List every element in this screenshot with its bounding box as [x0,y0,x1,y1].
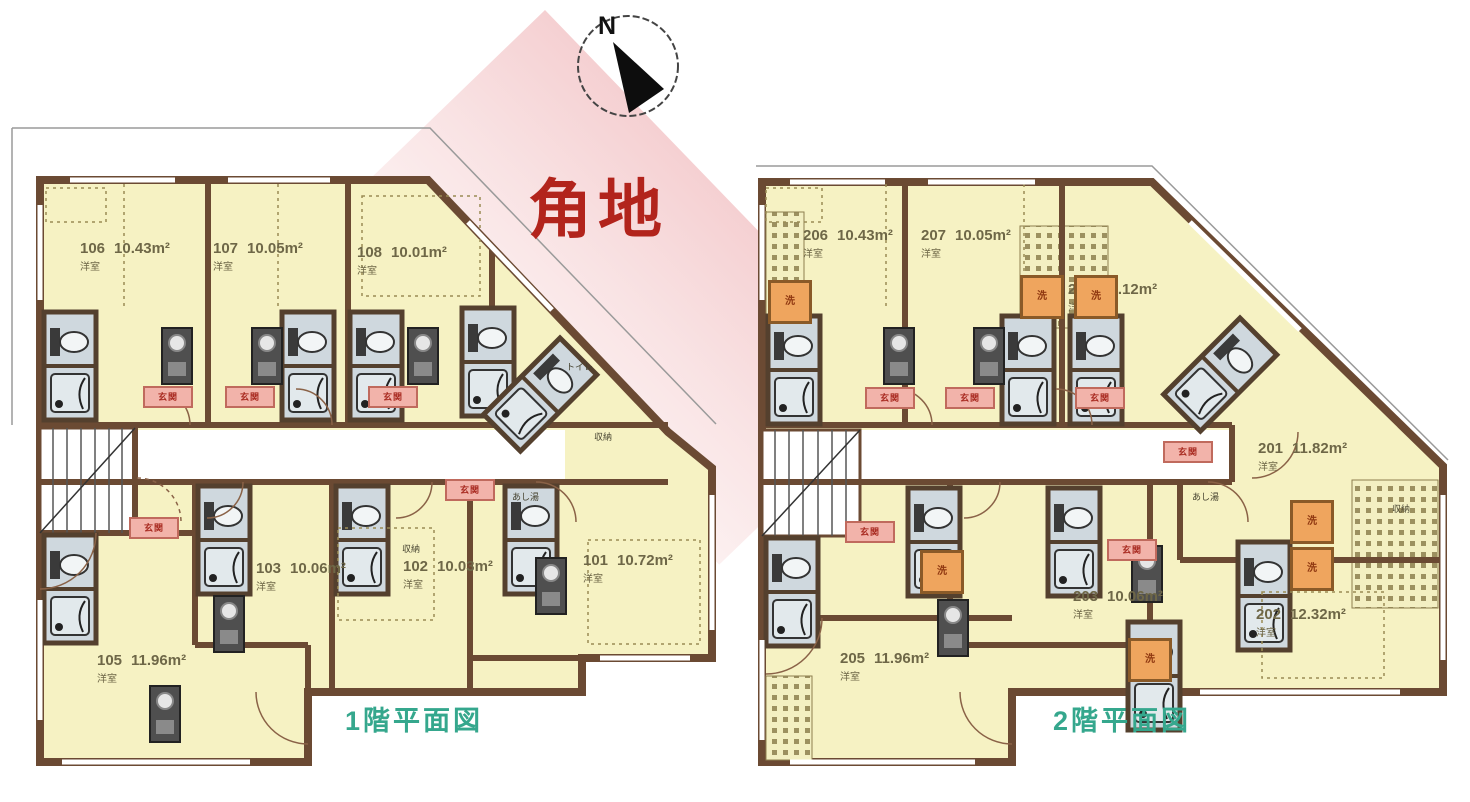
north-label: N [598,12,616,41]
entrance-label: 玄関 [445,479,495,501]
floor1-caption: 1階平面図 [345,699,483,738]
laundry-label: 洗 [1290,500,1334,544]
entrance-label: 玄関 [225,386,275,408]
unit-label-107: 10710.05m² 洋室 [213,240,303,273]
unit-label-203: 20310.06m² 洋室 [1073,588,1163,621]
unit-label-207: 20710.05m² 洋室 [921,227,1011,260]
unit-label-108: 10810.01m² 洋室 [357,244,447,277]
entrance-label: 玄関 [945,387,995,409]
laundry-label: 洗 [768,280,812,324]
unit-label-102: 10210.03m² 洋室 [403,558,493,591]
entrance-label: 玄関 [1107,539,1157,561]
closet-label: 収納 [594,430,612,443]
laundry-label: 洗 [920,550,964,594]
unit-label-202: 20212.32m² 洋室 [1256,606,1346,639]
floorplan-page: N 角地 10610.43m² 洋室 10710.05m² 洋室 10810.0… [0,0,1470,802]
closet-label: 収納 [1392,502,1410,515]
unit-label-205: 20511.96m² 洋室 [840,650,929,683]
laundry-label: 洗 [1020,275,1064,319]
toilet-label: トイレ [566,360,593,373]
foot-bath-label: あし湯 [512,490,539,503]
foot-bath-label: あし湯 [1192,490,1219,503]
floorplan-drawing [0,0,1470,802]
laundry-label: 洗 [1290,547,1334,591]
unit-label-103: 10310.06m² 洋室 [256,560,346,593]
unit-label-106: 10610.43m² 洋室 [80,240,170,273]
entrance-label: 玄関 [865,387,915,409]
entrance-label: 玄関 [368,386,418,408]
entrance-label: 玄関 [129,517,179,539]
corner-lot-banner: 角地 [528,178,668,242]
unit-label-206: 20610.43m² 洋室 [803,227,893,260]
laundry-label: 洗 [1074,275,1118,319]
entrance-label: 玄関 [143,386,193,408]
unit-label-105: 10511.96m² 洋室 [97,652,186,685]
entrance-label: 玄関 [1163,441,1213,463]
laundry-label: 洗 [1128,638,1172,682]
entrance-label: 玄関 [1075,387,1125,409]
floor2-caption: 2階平面図 [1053,699,1191,738]
entrance-label: 玄関 [845,521,895,543]
north-arrow-icon [578,16,678,116]
unit-label-201: 20111.82m² 洋室 [1258,440,1347,473]
closet-label: 収納 [402,542,420,555]
unit-label-101: 10110.72m² 洋室 [583,552,673,585]
